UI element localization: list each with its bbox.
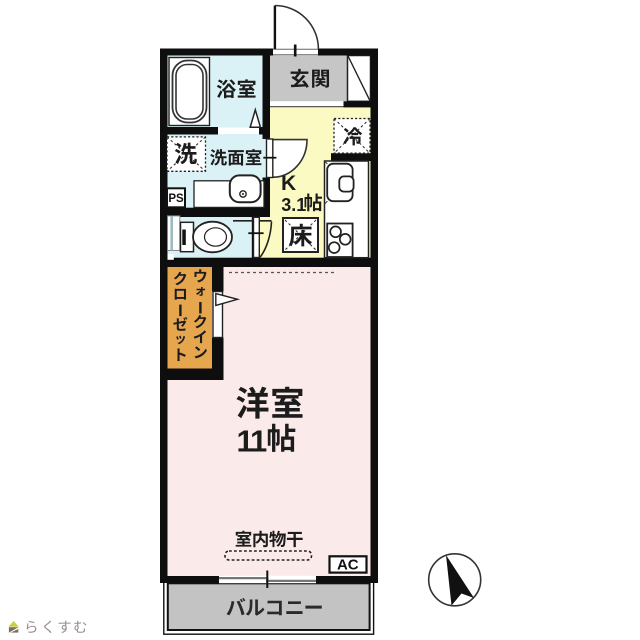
- svg-text:3.1: 3.1: [281, 195, 306, 215]
- svg-text:PS: PS: [168, 193, 184, 205]
- svg-text:K: K: [281, 172, 296, 195]
- svg-text:AC: AC: [337, 557, 359, 574]
- svg-text:11: 11: [237, 423, 268, 458]
